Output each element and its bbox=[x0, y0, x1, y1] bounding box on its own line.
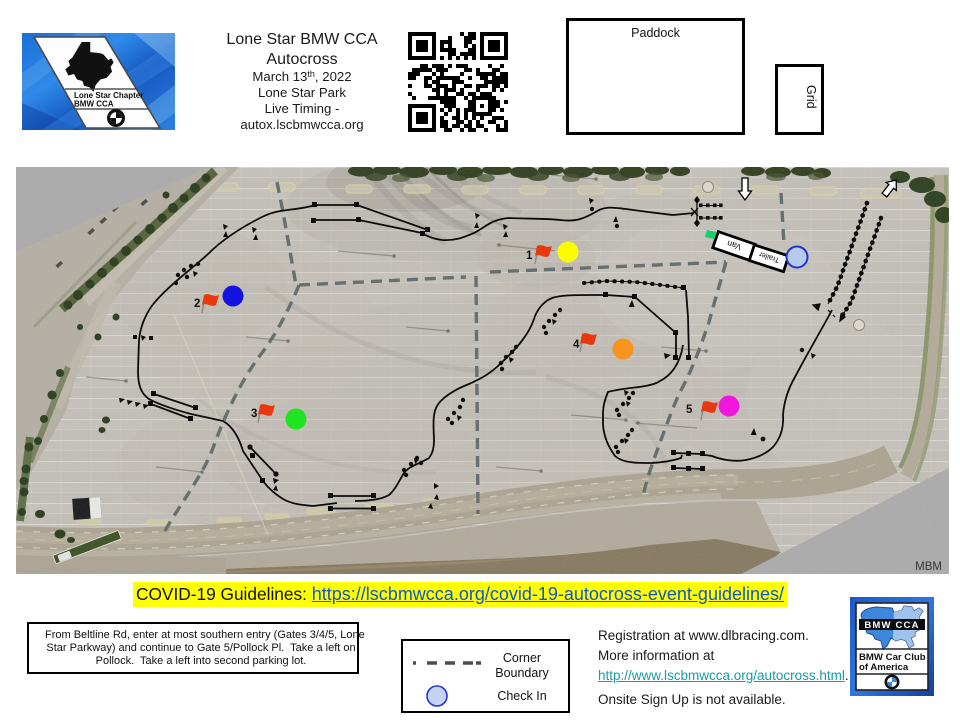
svg-text:2: 2 bbox=[194, 298, 200, 310]
svg-text:4: 4 bbox=[573, 339, 580, 351]
svg-text:BMW CCA: BMW CCA bbox=[864, 620, 919, 631]
svg-text:5: 5 bbox=[686, 404, 693, 416]
svg-text:of America: of America bbox=[859, 662, 909, 673]
svg-text:1: 1 bbox=[526, 250, 533, 262]
svg-text:BMW CCA: BMW CCA bbox=[74, 100, 114, 109]
svg-text:3: 3 bbox=[251, 408, 257, 420]
